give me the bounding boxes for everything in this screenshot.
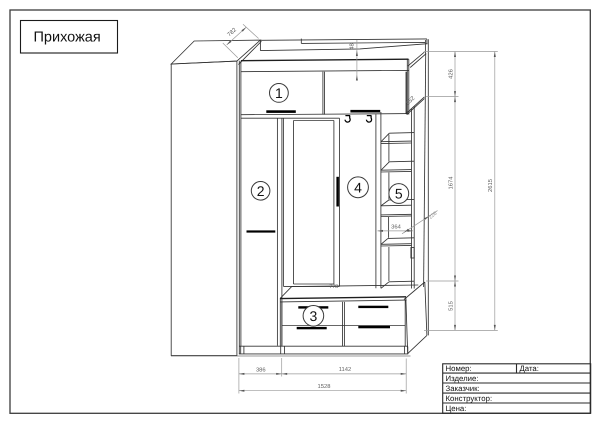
svg-text:364: 364 [391, 223, 401, 230]
svg-text:1142: 1142 [339, 366, 351, 373]
svg-text:Заказчик:: Заказчик: [446, 384, 480, 393]
svg-text:Прихожая: Прихожая [34, 30, 101, 46]
svg-text:Номер:: Номер: [446, 364, 472, 373]
svg-text:Изделие:: Изделие: [446, 374, 479, 383]
svg-text:778: 778 [329, 284, 338, 290]
svg-text:Конструктор:: Конструктор: [446, 394, 493, 403]
svg-text:5: 5 [395, 186, 403, 202]
svg-text:1: 1 [275, 85, 283, 101]
svg-text:Цена:: Цена: [446, 404, 467, 413]
svg-text:4: 4 [354, 179, 362, 195]
svg-text:48: 48 [348, 43, 355, 49]
svg-text:2615: 2615 [487, 179, 494, 192]
svg-text:3: 3 [310, 308, 318, 324]
svg-text:Дата:: Дата: [520, 364, 539, 373]
svg-text:1674: 1674 [447, 176, 454, 190]
svg-text:2: 2 [257, 183, 265, 199]
svg-text:515: 515 [448, 301, 454, 311]
svg-text:386: 386 [256, 366, 266, 373]
svg-text:426: 426 [447, 69, 454, 79]
svg-text:1528: 1528 [318, 383, 331, 390]
